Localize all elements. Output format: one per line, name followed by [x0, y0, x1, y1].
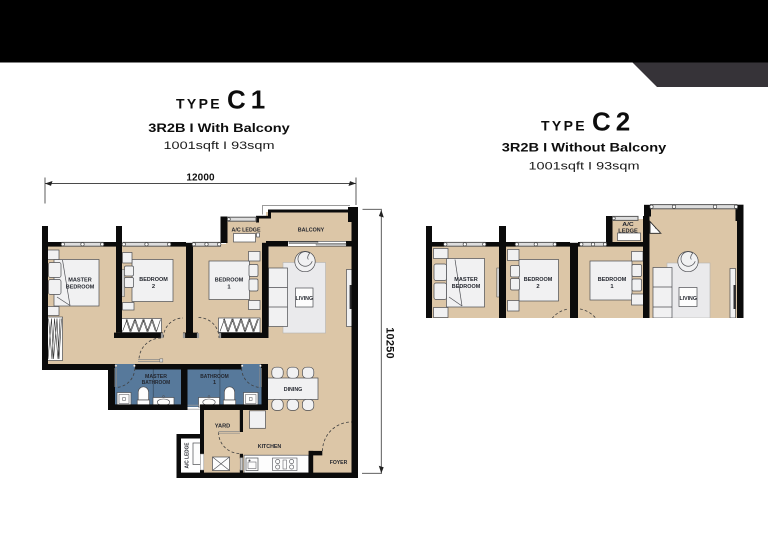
svg-text:BATHROOM: BATHROOM [200, 374, 229, 380]
svg-text:TYPE: TYPE [541, 118, 587, 134]
svg-text:FOYER: FOYER [330, 460, 348, 466]
svg-text:12000: 12000 [186, 172, 215, 183]
svg-text:A/C LEDGE: A/C LEDGE [232, 228, 261, 234]
svg-text:KITCHEN: KITCHEN [258, 444, 282, 450]
svg-text:1001sqft I 93sqm: 1001sqft I 93sqm [529, 161, 640, 173]
svg-text:2: 2 [536, 284, 539, 290]
svg-text:3R2B I With Balcony: 3R2B I With Balcony [148, 121, 290, 135]
svg-text:3R2B I Without Balcony: 3R2B I Without Balcony [502, 141, 667, 155]
svg-text:MASTER: MASTER [145, 374, 167, 380]
svg-text:BEDROOM: BEDROOM [452, 284, 481, 290]
svg-text:A/C LEDGE: A/C LEDGE [185, 442, 191, 468]
svg-text:A/C: A/C [622, 222, 634, 228]
svg-text:1: 1 [213, 380, 216, 386]
svg-text:YARD: YARD [215, 424, 231, 430]
svg-text:BATHROOM: BATHROOM [142, 380, 171, 386]
svg-text:C2: C2 [592, 107, 635, 137]
svg-text:10250: 10250 [383, 327, 395, 359]
svg-text:BEDROOM: BEDROOM [66, 284, 95, 290]
svg-text:2: 2 [152, 284, 155, 290]
svg-text:BEDROOM: BEDROOM [139, 277, 168, 283]
svg-text:BALCONY: BALCONY [298, 228, 325, 234]
svg-text:TYPE: TYPE [176, 96, 222, 112]
svg-text:LIVING: LIVING [296, 296, 314, 302]
svg-text:BEDROOM: BEDROOM [598, 277, 627, 283]
svg-text:MASTER: MASTER [68, 278, 92, 284]
svg-text:BEDROOM: BEDROOM [524, 277, 553, 283]
svg-text:1001sqft I 93sqm: 1001sqft I 93sqm [164, 140, 275, 152]
svg-text:BEDROOM: BEDROOM [215, 278, 244, 284]
svg-text:DINING: DINING [284, 387, 303, 393]
svg-text:LIVING: LIVING [679, 296, 697, 302]
svg-text:LEDGE: LEDGE [618, 228, 638, 234]
svg-text:MASTER: MASTER [454, 277, 478, 283]
svg-text:C1: C1 [227, 85, 270, 115]
